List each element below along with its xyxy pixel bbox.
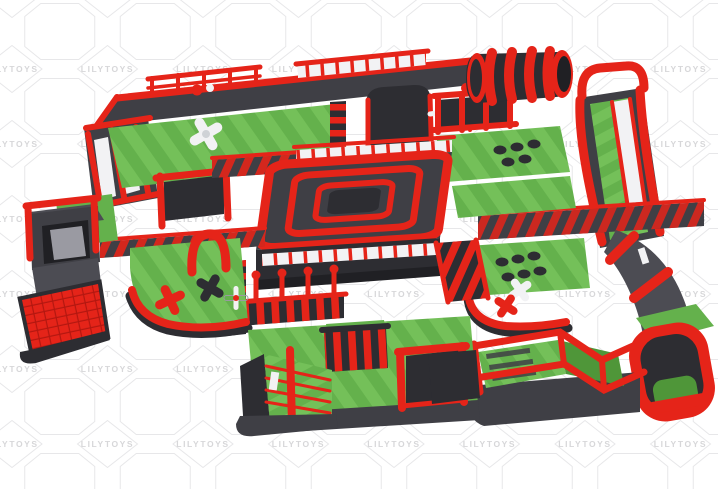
platform-stairs <box>436 240 488 302</box>
striped-wall-bottom <box>322 320 388 372</box>
obstacle-floor-mid-left <box>130 234 248 334</box>
product-image: LILYTOYSLILYTOYSLILYTOYSLILYTOYSLILYTOYS… <box>0 0 718 489</box>
cube-gateway <box>20 194 118 364</box>
tunnel-opening <box>557 56 571 92</box>
zigzag-course <box>467 332 644 426</box>
scene-svg: Inflatable obstacle course park - 3D ren… <box>0 0 718 489</box>
white-ball <box>206 84 214 92</box>
connector-wall <box>428 350 480 404</box>
red-ball <box>192 85 203 96</box>
green-floor-pommels-upper <box>436 126 570 182</box>
striped-tunnel <box>466 50 573 103</box>
red-mattress <box>20 284 110 364</box>
red-pole <box>290 350 292 424</box>
